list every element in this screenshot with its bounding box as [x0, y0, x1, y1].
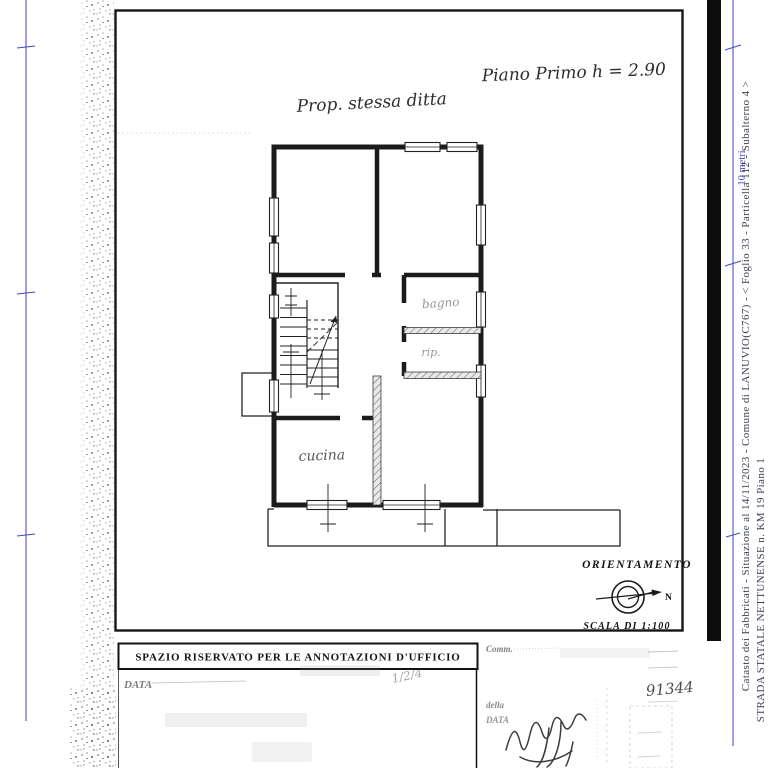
annotation-header: SPAZIO RISERVATO PER LE ANNOTAZIONI D'UF… — [135, 652, 460, 664]
north-label: N — [665, 593, 672, 603]
margin-caption-catasto: Catasto dei Fabbricati - Situazione al 1… — [740, 81, 752, 691]
scale-label: SCALA DI 1:100 — [583, 621, 670, 632]
right-data-label: DATA — [485, 715, 509, 725]
comm-label: Comm. — [486, 644, 513, 654]
margin-caption-address: STRADA STATALE NETTUNENSE n. KM 19 Piano… — [755, 458, 767, 722]
room-label-bagno: bagno — [422, 295, 460, 312]
room-label-rip: rip. — [421, 346, 440, 359]
data-label: DATA — [123, 679, 152, 691]
cadastral-sheet: 10 metri Catasto dei Fabbricati - Situaz… — [0, 0, 783, 768]
orientation-title: ORIENTAMENTO — [582, 559, 692, 571]
binding-bar — [707, 0, 721, 641]
della-label: della — [486, 700, 504, 710]
room-label-cucina: cucina — [298, 447, 345, 465]
plan-canvas: 10 metri Catasto dei Fabbricati - Situaz… — [0, 0, 783, 768]
